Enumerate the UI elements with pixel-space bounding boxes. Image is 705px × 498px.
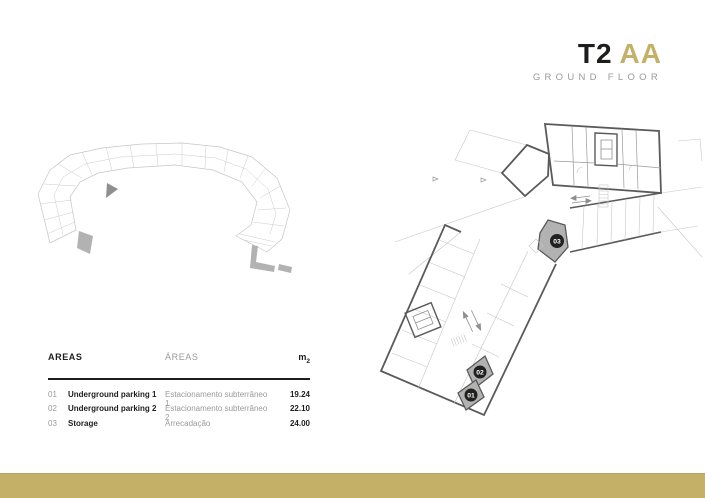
floor-plan: 03 02 01 bbox=[368, 113, 705, 425]
site-building-outline bbox=[38, 143, 290, 252]
areas-table-header: AREAS ÁREAS m2 bbox=[48, 352, 310, 380]
structural-walls bbox=[381, 124, 661, 415]
header-unit: m2 bbox=[268, 352, 310, 365]
table-row: 01 Underground parking 1 Estacionamento … bbox=[48, 390, 310, 404]
header-areas-pt: ÁREAS bbox=[165, 352, 268, 362]
project-code: T2 bbox=[578, 38, 613, 69]
direction-arrows bbox=[461, 196, 591, 335]
site-unit-dividers bbox=[40, 143, 286, 246]
unit-sub: 2 bbox=[306, 358, 310, 365]
row-name-pt: Arrecadação bbox=[165, 419, 268, 428]
site-plan-overview bbox=[30, 142, 315, 292]
row-area: 22.10 bbox=[268, 404, 310, 413]
typology-code: AA bbox=[620, 38, 662, 69]
table-row: 02 Underground parking 2 Estacionamento … bbox=[48, 404, 310, 418]
project-title-block: T2AA GROUND FLOOR bbox=[533, 40, 662, 83]
unit-03-storage: 03 bbox=[529, 220, 568, 262]
row-area: 24.00 bbox=[268, 419, 310, 428]
page-title: T2AA bbox=[533, 40, 662, 68]
room-partitions bbox=[554, 126, 661, 189]
header-areas-en: AREAS bbox=[48, 352, 165, 362]
stair-core bbox=[405, 303, 441, 338]
parking-stall-lines bbox=[392, 195, 654, 404]
footer-accent-bar bbox=[0, 473, 705, 498]
ramp-hatch bbox=[451, 185, 608, 346]
areas-table: AREAS ÁREAS m2 01 Underground parking 1 … bbox=[48, 352, 310, 433]
row-name-en: Storage bbox=[68, 419, 165, 428]
site-ramp-walls bbox=[250, 245, 292, 273]
row-number: 01 bbox=[48, 390, 68, 399]
row-number: 02 bbox=[48, 404, 68, 413]
site-highlight-lower bbox=[77, 231, 93, 254]
row-area: 19.24 bbox=[268, 390, 310, 399]
unit-badge-01-label: 01 bbox=[467, 392, 475, 399]
table-row: 03 Storage Arrecadação 24.00 bbox=[48, 419, 310, 433]
row-name-en: Underground parking 2 bbox=[68, 404, 165, 413]
unit-badge-03-label: 03 bbox=[553, 238, 561, 245]
row-name-en: Underground parking 1 bbox=[68, 390, 165, 399]
site-highlight-upper bbox=[106, 183, 118, 198]
floor-label: GROUND FLOOR bbox=[533, 72, 662, 83]
row-number: 03 bbox=[48, 419, 68, 428]
plan-sheet-page: T2AA GROUND FLOOR AREAS ÁREAS m2 bbox=[0, 0, 705, 498]
areas-table-body: 01 Underground parking 1 Estacionamento … bbox=[48, 390, 310, 433]
unit-badge-02-label: 02 bbox=[476, 369, 484, 376]
